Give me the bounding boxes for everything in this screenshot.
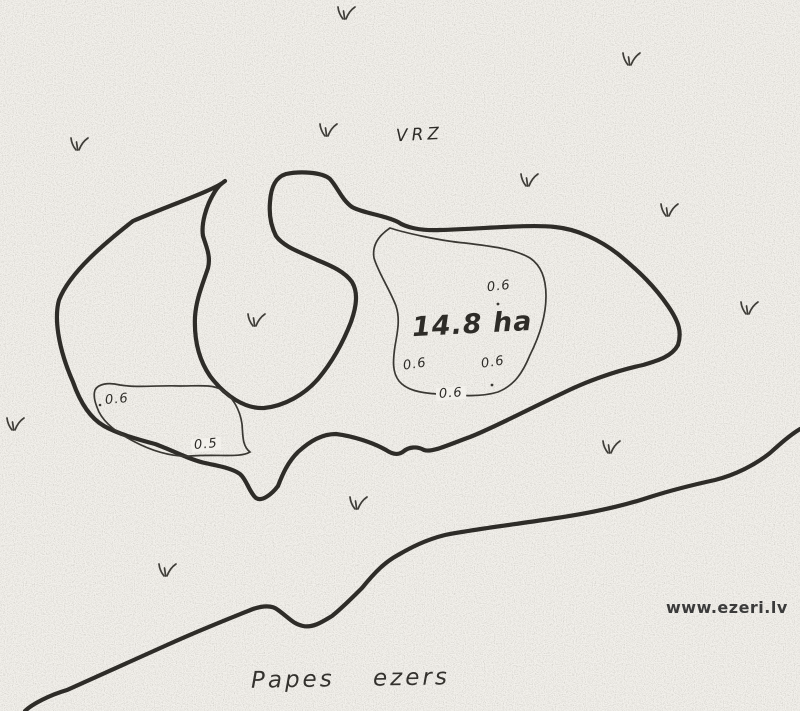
ink-dot (497, 303, 500, 306)
depth-label: 0.6 (104, 392, 129, 407)
area-label: 14.8 ha (411, 308, 533, 341)
zone-label: VRZ (396, 126, 444, 145)
depth-label: 0.5 (190, 437, 221, 453)
depth-label: 0.6 (402, 356, 427, 372)
depth-label: 0.6 (486, 279, 511, 294)
ink-dot (99, 404, 102, 407)
depth-label: 0.6 (480, 354, 505, 370)
lake-map: VRZ 14.8 ha 0.6 0.6 0.6 0.6 0.6 0.5 Pape… (0, 0, 800, 711)
watermark-text: www.ezeri.lv (666, 600, 788, 616)
lake-name-label: Papes ezers (251, 666, 450, 692)
depth-label: 0.6 (436, 386, 467, 401)
ink-dot (491, 384, 494, 387)
